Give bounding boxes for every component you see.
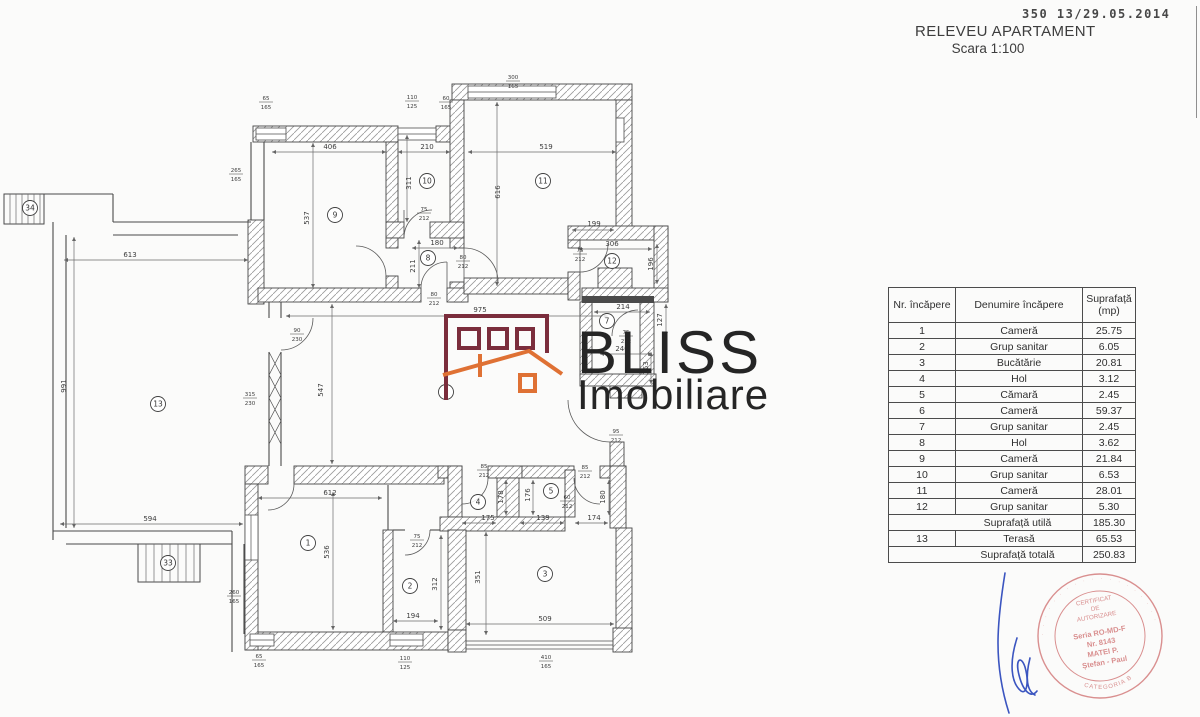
room-number: 5 [549, 487, 554, 496]
room-nr-cell: 7 [889, 419, 956, 435]
opening-size-numerator: 65 [256, 654, 263, 660]
room-area-cell: 5.30 [1083, 499, 1136, 515]
opening-size-denominator: 165 [254, 663, 265, 669]
dim-label: 210 [420, 143, 433, 151]
room-number: 12 [607, 257, 617, 266]
dim-label: 616 [494, 185, 502, 199]
table-row: 12Grup sanitar5.30 [889, 499, 1136, 515]
opening-size-numerator: 260 [229, 590, 240, 596]
opening-size-denominator: 125 [407, 104, 418, 110]
page-title: RELEVEU APARTAMENT [915, 23, 1096, 40]
dim-label: 509 [538, 615, 551, 623]
dim-label: 211 [409, 259, 417, 272]
opening-size-denominator: 212 [562, 504, 573, 510]
opening-size-numerator: 300 [508, 75, 519, 81]
table-row: 6Cameră59.37 [889, 403, 1136, 419]
room-nr-cell: 5 [889, 387, 956, 403]
dim-label: 612 [323, 489, 336, 497]
room-name-cell: Cameră [956, 483, 1083, 499]
opening-size-denominator: 230 [292, 337, 303, 343]
col-header-area: Suprafață (mp) [1083, 288, 1136, 323]
opening-size-numerator: 85 [582, 465, 589, 471]
room-number: 13 [153, 400, 163, 409]
table-header-row: Nr. încăpere Denumire încăpere Suprafață… [889, 288, 1136, 323]
col-header-name: Denumire încăpere [956, 288, 1083, 323]
room-area-cell: 59.37 [1083, 403, 1136, 419]
opening-size-denominator: 165 [229, 599, 240, 605]
opening-size-denominator: 165 [261, 105, 272, 111]
room-number: 1 [306, 539, 311, 548]
room-nr-cell: 8 [889, 435, 956, 451]
room-number: 8 [426, 254, 431, 263]
table-row: 1Cameră25.75 [889, 323, 1136, 339]
dim-label: 991 [60, 379, 68, 392]
room-name-cell: Grup sanitar [956, 339, 1083, 355]
stamp-line: DE [1090, 605, 1100, 613]
opening-size-denominator: 212 [611, 438, 622, 444]
opening-size-numerator: 75 [414, 534, 421, 540]
table-row: Suprafață totală250.83 [889, 547, 1136, 563]
dim-label: 176 [524, 488, 532, 502]
room-name-cell: Grup sanitar [956, 467, 1083, 483]
room-area-cell: 21.84 [1083, 451, 1136, 467]
room-area-cell: 6.53 [1083, 467, 1136, 483]
room-nr-cell: 6 [889, 403, 956, 419]
dim-label: 547 [317, 383, 325, 396]
room-area-cell: 28.01 [1083, 483, 1136, 499]
room-number: 2 [408, 582, 413, 591]
table-row: 5Cămară2.45 [889, 387, 1136, 403]
room-number: 34 [25, 204, 35, 213]
opening-size-denominator: 165 [541, 664, 552, 670]
opening-size-denominator: 212 [575, 257, 586, 263]
room-name-cell: Hol [956, 371, 1083, 387]
room-area-cell: 65.53 [1083, 531, 1136, 547]
dim-label: 312 [431, 577, 439, 590]
summary-area-cell: 185.30 [1083, 515, 1136, 531]
opening-size-numerator: 110 [400, 656, 411, 662]
room-name-cell: Grup sanitar [956, 419, 1083, 435]
room-nr-cell: 13 [889, 531, 956, 547]
dim-label: 306 [605, 240, 619, 248]
room-number: 33 [163, 559, 173, 568]
opening-size-numerator: 75 [421, 207, 428, 213]
date-stamp: 350 13/29.05.2014 [1022, 7, 1170, 21]
room-name-cell: Cameră [956, 403, 1083, 419]
dim-label: 174 [587, 514, 601, 522]
table-row: 7Grup sanitar2.45 [889, 419, 1136, 435]
room-number: 3 [543, 570, 548, 579]
table-row: 8Hol3.62 [889, 435, 1136, 451]
table-row: 11Cameră28.01 [889, 483, 1136, 499]
opening-size-numerator: 95 [613, 429, 620, 435]
pen-signature [975, 563, 1085, 717]
room-name-cell: Bucătărie [956, 355, 1083, 371]
opening-size-numerator: 60 [443, 96, 450, 102]
room-number: 11 [538, 177, 548, 186]
opening-size-denominator: 230 [245, 401, 256, 407]
room-name-cell: Terasă [956, 531, 1083, 547]
room-nr-cell: 12 [889, 499, 956, 515]
opening-size-numerator: 265 [231, 168, 242, 174]
terrace-walls [44, 142, 440, 652]
room-area-cell: 6.05 [1083, 339, 1136, 355]
room-name-cell: Grup sanitar [956, 499, 1083, 515]
table-row: Suprafață utilă185.30 [889, 515, 1136, 531]
dim-label: 180 [599, 490, 607, 503]
table-row: 3Bucătărie20.81 [889, 355, 1136, 371]
french-window-icon [269, 352, 281, 444]
dim-label: 196 [647, 257, 655, 271]
room-nr-cell: 9 [889, 451, 956, 467]
house-icon [443, 316, 562, 400]
room-area-cell: 3.62 [1083, 435, 1136, 451]
scan-page-edge [1196, 6, 1197, 118]
dim-label: 536 [323, 545, 331, 559]
dim-label: 311 [405, 176, 413, 189]
room-area-cell: 25.75 [1083, 323, 1136, 339]
room-nr-cell: 4 [889, 371, 956, 387]
table-row: 13Terasă65.53 [889, 531, 1136, 547]
opening-size-denominator: 212 [419, 216, 430, 222]
dim-label: 351 [474, 570, 482, 583]
dim-label: 180 [430, 239, 443, 247]
dim-label: 199 [587, 220, 600, 228]
room-nr-cell: 3 [889, 355, 956, 371]
summary-label-cell: Suprafață totală [889, 547, 1083, 563]
room-area-cell: 20.81 [1083, 355, 1136, 371]
opening-size-denominator: 165 [441, 105, 452, 111]
room-name-cell: Cameră [956, 451, 1083, 467]
room-number: 9 [333, 211, 338, 220]
dim-label: 194 [406, 612, 420, 620]
room-name-cell: Hol [956, 435, 1083, 451]
room-nr-cell: 2 [889, 339, 956, 355]
opening-size-numerator: 60 [564, 495, 571, 501]
opening-size-numerator: 110 [407, 95, 418, 101]
room-nr-cell: 1 [889, 323, 956, 339]
dim-label: 519 [539, 143, 552, 151]
dim-label: 178 [497, 490, 505, 503]
dim-label: 594 [143, 515, 157, 523]
opening-size-denominator: 125 [400, 665, 411, 671]
table-row: 4Hol3.12 [889, 371, 1136, 387]
col-header-nr: Nr. încăpere [889, 288, 956, 323]
opening-size-denominator: 212 [412, 543, 423, 549]
bliss-imobiliare-logo: BLISS Imobiliare [437, 303, 782, 415]
opening-size-numerator: 75 [577, 248, 584, 254]
room-area-cell: 2.45 [1083, 419, 1136, 435]
dim-label: 139 [536, 514, 549, 522]
room-name-cell: Cameră [956, 323, 1083, 339]
opening-size-numerator: 80 [460, 255, 467, 261]
opening-size-denominator: 212 [458, 264, 469, 270]
table-row: 2Grup sanitar6.05 [889, 339, 1136, 355]
table-row: 10Grup sanitar6.53 [889, 467, 1136, 483]
room-number: 4 [476, 498, 481, 507]
opening-size-numerator: 80 [431, 292, 438, 298]
opening-size-numerator: 315 [245, 392, 256, 398]
logo-word-2: Imobiliare [577, 371, 769, 415]
opening-size-numerator: 85 [481, 464, 488, 470]
summary-label-cell: Suprafață utilă [889, 515, 1083, 531]
opening-size-denominator: 165 [231, 177, 242, 183]
room-number: 10 [422, 177, 432, 186]
room-nr-cell: 11 [889, 483, 956, 499]
opening-size-numerator: 90 [294, 328, 301, 334]
table-row: 9Cameră21.84 [889, 451, 1136, 467]
opening-size-denominator: 212 [580, 474, 591, 480]
dim-label: 537 [303, 211, 311, 224]
room-area-cell: 3.12 [1083, 371, 1136, 387]
opening-size-denominator: 212 [479, 473, 490, 479]
summary-area-cell: 250.83 [1083, 547, 1136, 563]
opening-size-numerator: 410 [541, 655, 552, 661]
scanned-floorplan-page: { "colors": { "paper": "#fbfbfa", "ink":… [0, 0, 1200, 717]
dim-label: 175 [481, 514, 494, 522]
room-name-cell: Cămară [956, 387, 1083, 403]
room-areas-table: Nr. încăpere Denumire încăpere Suprafață… [888, 287, 1136, 563]
scale-subtitle: Scara 1:100 [913, 41, 1063, 56]
opening-size-denominator: 165 [508, 84, 519, 90]
room-nr-cell: 10 [889, 467, 956, 483]
room-area-cell: 2.45 [1083, 387, 1136, 403]
dim-label: 406 [323, 143, 337, 151]
opening-size-numerator: 65 [263, 96, 270, 102]
dim-label: 613 [123, 251, 136, 259]
